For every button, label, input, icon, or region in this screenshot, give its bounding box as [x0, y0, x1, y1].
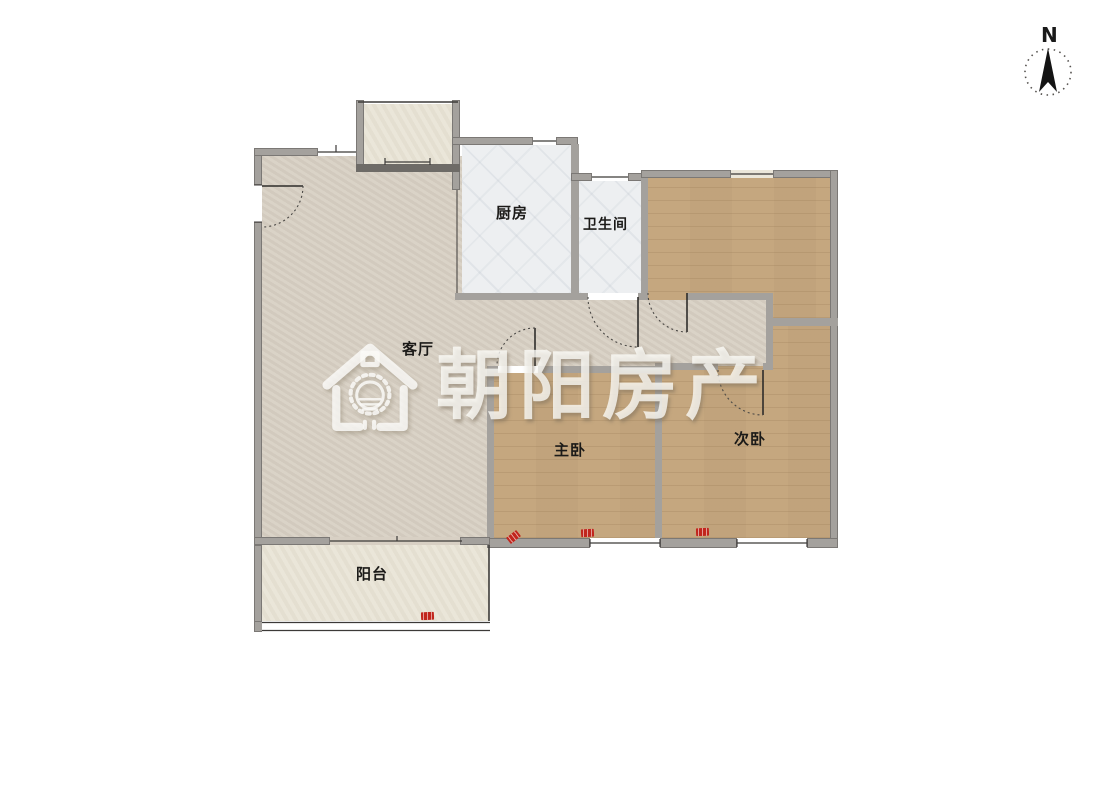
wall: [254, 537, 330, 545]
wall: [766, 300, 773, 366]
room-label-second: 次卧: [734, 428, 766, 449]
room-label-balcony: 阳台: [356, 563, 388, 584]
compass-north-label: N: [1041, 23, 1058, 47]
wall: [655, 363, 718, 370]
ac-unit-marker: [696, 528, 709, 536]
wall: [571, 144, 579, 293]
wall: [254, 148, 318, 156]
wall: [571, 173, 592, 181]
compass-needle-icon: [1039, 48, 1057, 92]
room-label-master: 主卧: [554, 439, 586, 460]
wall: [641, 170, 731, 178]
wall: [487, 538, 590, 548]
wall: [571, 293, 588, 300]
wall: [538, 366, 662, 373]
wall: [452, 100, 460, 190]
window-bathroom: [592, 173, 628, 181]
window-master-bedroom: [590, 538, 660, 548]
wall: [655, 363, 662, 545]
room-label-kitchen: 厨房: [496, 202, 528, 223]
room-living-floor: [262, 156, 490, 545]
wall: [455, 293, 571, 300]
wall: [773, 170, 838, 178]
north-compass: N: [1012, 14, 1084, 110]
room-porch-floor: [364, 104, 452, 164]
ac-unit-marker: [421, 612, 434, 620]
wall: [487, 366, 494, 545]
wall: [638, 293, 648, 300]
window-topright-room: [731, 170, 773, 178]
hallway-floor: [462, 300, 766, 366]
floorplan-canvas: 朝阳房产 客厅 厨房 卫生间 主卧 次卧 阳台 N: [0, 0, 1119, 793]
entrance-door-opening: [254, 185, 262, 222]
wall: [773, 318, 838, 326]
wall: [460, 537, 490, 545]
room-label-living: 客厅: [402, 338, 434, 359]
wall: [356, 164, 460, 172]
window-balcony: [262, 621, 490, 632]
wall: [356, 100, 364, 172]
ac-unit-marker: [581, 529, 594, 538]
wall: [687, 293, 773, 300]
wall: [254, 545, 262, 632]
wall: [660, 538, 737, 548]
window-kitchen: [533, 137, 556, 145]
window-second-bedroom: [737, 538, 807, 548]
balcony-sliding-opening: [330, 537, 460, 545]
wall: [807, 538, 838, 548]
wall: [830, 170, 838, 548]
wall: [452, 137, 533, 145]
room-bathroom-floor: [579, 181, 641, 293]
room-label-bathroom: 卫生间: [583, 214, 628, 234]
wall: [641, 178, 648, 293]
window-living-top: [318, 148, 356, 156]
wall: [763, 363, 773, 370]
